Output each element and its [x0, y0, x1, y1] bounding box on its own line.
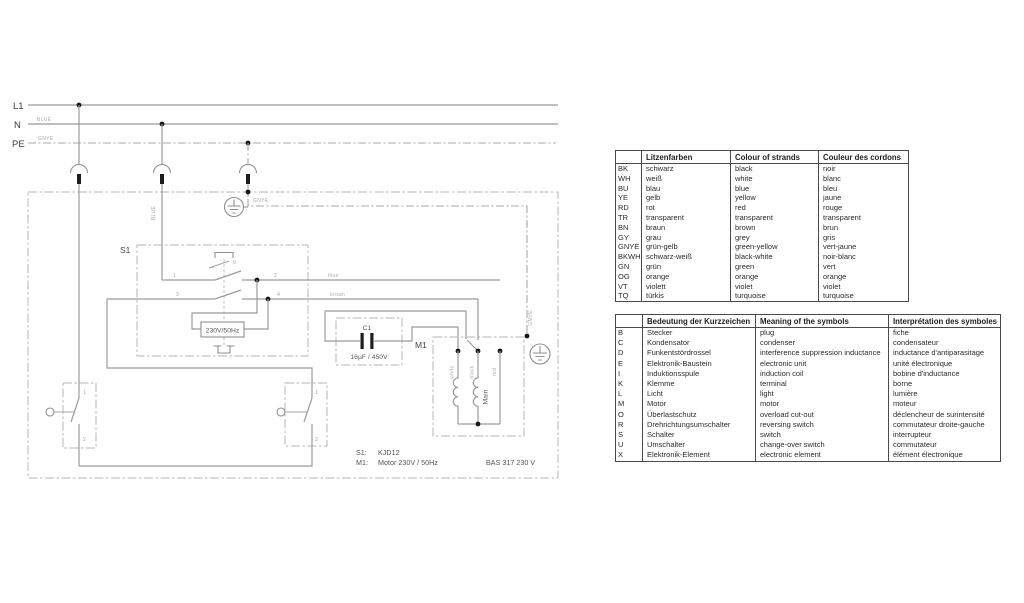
s1-switch-unit: S1 BLUE 0 1 2 3 4 blue brown 230V/50Hz [107, 184, 500, 356]
table-cell: blanc [819, 174, 909, 184]
pe-enclosure-dot [246, 190, 251, 195]
table-cell: light [756, 389, 889, 399]
table-row: LLichtlightlumière [616, 389, 1001, 399]
table-cell: commutateur droite-gauche [889, 420, 1001, 430]
table-row: BKschwarzblacknoir [616, 164, 909, 174]
table-cell: C [616, 338, 643, 348]
gnye-wire [248, 184, 527, 336]
sw2-terminal-1: 1 [315, 390, 318, 396]
table-row: TQtürkisturquoiseturquoise [616, 291, 909, 301]
table-row: BSteckerplugfiche [616, 328, 1001, 339]
table-cell: brown [731, 223, 819, 233]
terminal-4-label: 4 [277, 292, 280, 298]
table-cell: inductance d'antiparasitage [889, 348, 1001, 358]
s1-label: S1 [120, 245, 131, 255]
star-point-dot [476, 422, 481, 427]
earth-symbol-right [530, 344, 550, 364]
table-cell: terminal [756, 379, 889, 389]
footer-m1-value: Motor 230V / 50Hz [378, 458, 438, 467]
table-cell: K [616, 379, 643, 389]
reset-anchor-icon [214, 346, 235, 353]
table-cell: commutateur [889, 440, 1001, 450]
n-color-tag: BLUE [37, 117, 52, 123]
table-cell: Funkentstördrossel [643, 348, 756, 358]
wiring-diagram-page: L1 N PE BLUE GNYE [0, 0, 1024, 603]
table-cell: borne [889, 379, 1001, 389]
motor-m1: M1 white black red Main [415, 299, 524, 436]
table-cell: transparent [819, 213, 909, 223]
table-cell: white [731, 174, 819, 184]
table-cell: rot [642, 203, 731, 213]
table-cell: BN [616, 223, 642, 233]
rail-label-l1: L1 [13, 101, 24, 112]
rail-label-n: N [14, 120, 21, 131]
table-cell: condenser [756, 338, 889, 348]
model-number: BAS 317 230 V [486, 458, 535, 467]
column-header: Couleur des cordons [819, 151, 909, 164]
table-cell: lumière [889, 389, 1001, 399]
table-cell: YE [616, 193, 642, 203]
table-cell: WH [616, 174, 642, 184]
contact-3-4 [107, 290, 478, 299]
main-winding-coil [473, 351, 478, 424]
s1-pos0-label: 0 [233, 260, 236, 266]
table-cell: braun [642, 223, 731, 233]
interlock-switch-left: 1 2 [46, 184, 96, 466]
table-cell: OG [616, 272, 642, 282]
table-cell: motor [756, 399, 889, 409]
table-cell: green [731, 262, 819, 272]
c1-plate-left [361, 333, 364, 349]
table-cell: S [616, 430, 643, 440]
table-cell: D [616, 348, 643, 358]
table-cell: brun [819, 223, 909, 233]
plug-connector-1 [71, 165, 88, 185]
table-cell: türkis [642, 291, 731, 301]
wire-color-table: LitzenfarbenColour of strandsCouleur des… [615, 150, 909, 302]
table-cell: I [616, 369, 643, 379]
table-row: TRtransparenttransparenttransparent [616, 213, 909, 223]
table-cell: Klemme [643, 379, 756, 389]
table-cell: schwarz-weiß [642, 252, 731, 262]
table-cell: blau [642, 184, 731, 194]
table-row: EElektronik-Bausteinelectronic unitunité… [616, 359, 1001, 369]
table-row: RDrehrichtungsumschalterreversing switch… [616, 420, 1001, 430]
sw2-wires [79, 299, 312, 466]
table-cell: M [616, 399, 643, 409]
table-row: SSchalterswitchinterrupteur [616, 430, 1001, 440]
terminal-2-label: 2 [274, 273, 277, 279]
table-cell: black [731, 164, 819, 174]
footer-m1-key: M1: [356, 458, 368, 467]
table-cell: violett [642, 282, 731, 292]
table-cell: Überlastschutz [643, 410, 756, 420]
earth-symbol-left [225, 198, 249, 217]
table-cell: TQ [616, 291, 642, 301]
table-cell: reversing switch [756, 420, 889, 430]
table-cell: switch [756, 430, 889, 440]
white-lead-tag: white [450, 365, 456, 378]
table-row: BNbraunbrownbrun [616, 223, 909, 233]
c1-value: 16µF / 450V [350, 354, 388, 361]
table-cell: BK [616, 164, 642, 174]
c1-plate-right [370, 333, 373, 349]
table-cell: VT [616, 282, 642, 292]
table-cell: violet [819, 282, 909, 292]
interlock-switch-right: 1 2 [79, 299, 327, 466]
table-cell: fiche [889, 328, 1001, 339]
table-cell: electronic unit [756, 359, 889, 369]
table-row: OGorangeorangeorange [616, 272, 909, 282]
sw1-wires [71, 184, 79, 466]
table-cell: bleu [819, 184, 909, 194]
table-cell: gris [819, 233, 909, 243]
table-cell: interrupteur [889, 430, 1001, 440]
table-cell: overload cut-out [756, 410, 889, 420]
red-lead-tag: red [492, 368, 498, 376]
motor-earth-dot [525, 334, 530, 339]
footer-legend: S1: KJD12 M1: Motor 230V / 50Hz BAS 317 … [356, 448, 535, 467]
table-cell: RD [616, 203, 642, 213]
table-row: BUblaubluebleu [616, 184, 909, 194]
column-header: Interprétation des symboles [889, 315, 1001, 328]
table-cell: transparent [731, 213, 819, 223]
terminal-3-label: 3 [176, 292, 179, 298]
table-cell: change-over switch [756, 440, 889, 450]
table-cell: GY [616, 233, 642, 243]
table-cell: transparent [642, 213, 731, 223]
table-cell: orange [819, 272, 909, 282]
blue-wire-tag: blue [328, 273, 339, 279]
table-cell: L [616, 389, 643, 399]
table-row: VTviolettvioletviolet [616, 282, 909, 292]
table-cell: bobine d'inductance [889, 369, 1001, 379]
symbol-table-header-row: Bedeutung der KurzzeichenMeaning of the … [616, 315, 1001, 328]
table-row: DFunkentstördrosselinterference suppress… [616, 348, 1001, 358]
plug-connectors [71, 105, 257, 184]
table-cell: E [616, 359, 643, 369]
table-cell: red [731, 203, 819, 213]
table-cell: Kondensator [643, 338, 756, 348]
coil-rating: 230V/50Hz [206, 328, 240, 335]
sw2-actuator-icon [277, 408, 285, 416]
aux-winding-coil [453, 351, 458, 424]
table-cell: BU [616, 184, 642, 194]
table-cell: O [616, 410, 643, 420]
estop-actuator-icon [215, 253, 233, 259]
table-cell: grey [731, 233, 819, 243]
table-cell: condensateur [889, 338, 1001, 348]
symbol-legend-table: Bedeutung der KurzzeichenMeaning of the … [615, 314, 1001, 462]
table-cell: X [616, 450, 643, 461]
plug-connector-2 [154, 165, 171, 185]
terminal-1-label: 1 [173, 273, 176, 279]
table-cell: Drehrichtungsumschalter [643, 420, 756, 430]
column-header: Bedeutung der Kurzzeichen [643, 315, 756, 328]
table-cell: B [616, 328, 643, 339]
sw1-terminal-1: 1 [83, 390, 86, 396]
table-cell: yellow [731, 193, 819, 203]
gnye-tag-top: GNYE [253, 198, 269, 204]
gnye-tag-right: GNYE [528, 310, 534, 326]
table-cell: interference suppression inductance [756, 348, 889, 358]
table-row: KKlemmeterminalborne [616, 379, 1001, 389]
pe-color-tag: GNYE [38, 136, 54, 142]
color-table-header-row: LitzenfarbenColour of strandsCouleur des… [616, 151, 909, 164]
table-row: YEgelbyellowjaune [616, 193, 909, 203]
table-cell: weiß [642, 174, 731, 184]
table-row: CKondensatorcondensercondensateur [616, 338, 1001, 348]
table-row: OÜberlastschutzoverload cut-outdéclenche… [616, 410, 1001, 420]
table-row: GYgraugreygris [616, 233, 909, 243]
table-cell: TR [616, 213, 642, 223]
table-row: RDrotredrouge [616, 203, 909, 213]
table-cell: noir [819, 164, 909, 174]
table-row: BKWHschwarz-weißblack-whitenoir-blanc [616, 252, 909, 262]
table-cell: BKWH [616, 252, 642, 262]
plug-drop-wires [79, 105, 162, 164]
table-cell: déclencheur de surintensité [889, 410, 1001, 420]
table-row: UUmschalterchange-over switchcommutateur [616, 440, 1001, 450]
column-header: Colour of strands [731, 151, 819, 164]
table-cell: R [616, 420, 643, 430]
main-winding-tag: Main [483, 389, 490, 404]
column-header: Meaning of the symbols [756, 315, 889, 328]
table-cell: unité électronique [889, 359, 1001, 369]
red-wire-and-star-point [458, 351, 500, 424]
table-cell: black-white [731, 252, 819, 262]
black-lead-tag: black [470, 365, 476, 378]
table-cell: turquoise [819, 291, 909, 301]
table-cell: gelb [642, 193, 731, 203]
m1-label: M1 [415, 340, 427, 350]
table-cell: violet [731, 282, 819, 292]
table-row: GNgrüngreenvert [616, 262, 909, 272]
table-cell: rouge [819, 203, 909, 213]
table-cell: turquoise [731, 291, 819, 301]
table-cell: Elektronik-Baustein [643, 359, 756, 369]
table-cell: schwarz [642, 164, 731, 174]
footer-s1-value: KJD12 [378, 448, 400, 457]
brown-wire-tag: brown [330, 292, 345, 298]
table-cell: jaune [819, 193, 909, 203]
rail-label-pe: PE [12, 139, 25, 150]
table-cell: induction coil [756, 369, 889, 379]
column-header [616, 315, 643, 328]
table-cell: electronic element [756, 450, 889, 461]
s1-outline [137, 245, 308, 356]
table-row: GNYEgrün-gelbgreen-yellowvert-jaune [616, 242, 909, 252]
table-cell: orange [731, 272, 819, 282]
table-cell: GN [616, 262, 642, 272]
power-rails: L1 N PE BLUE GNYE [12, 101, 558, 150]
table-cell: green-yellow [731, 242, 819, 252]
blue-drop-tag: BLUE [151, 206, 157, 221]
table-row: MMotormotormoteur [616, 399, 1001, 409]
table-cell: Licht [643, 389, 756, 399]
table-cell: blue [731, 184, 819, 194]
table-cell: élément électronique [889, 450, 1001, 461]
table-cell: noir-blanc [819, 252, 909, 262]
table-cell: vert [819, 262, 909, 272]
sw2-terminal-2: 2 [315, 437, 318, 443]
table-cell: moteur [889, 399, 1001, 409]
column-header: Litzenfarben [642, 151, 731, 164]
footer-s1-key: S1: [356, 448, 367, 457]
sw1-terminal-2: 2 [83, 437, 86, 443]
table-cell: Induktionsspule [643, 369, 756, 379]
table-cell: U [616, 440, 643, 450]
column-header [616, 151, 642, 164]
table-row: IInduktionsspuleinduction coilbobine d'i… [616, 369, 1001, 379]
table-cell: grün [642, 262, 731, 272]
trip-release-icon [209, 261, 229, 268]
plug-connector-3 [240, 165, 257, 185]
table-cell: orange [642, 272, 731, 282]
c1-label: C1 [363, 325, 372, 332]
table-cell: Motor [643, 399, 756, 409]
table-cell: Umschalter [643, 440, 756, 450]
table-cell: GNYE [616, 242, 642, 252]
table-cell: Stecker [643, 328, 756, 339]
capacitor-c1: C1 16µF / 450V [325, 311, 478, 365]
table-row: XElektronik-Elementelectronic elementélé… [616, 450, 1001, 461]
table-cell: Schalter [643, 430, 756, 440]
table-cell: grau [642, 233, 731, 243]
table-cell: plug [756, 328, 889, 339]
sw1-actuator-icon [46, 408, 54, 416]
table-cell: vert-jaune [819, 242, 909, 252]
table-cell: Elektronik-Element [643, 450, 756, 461]
table-row: WHweißwhiteblanc [616, 174, 909, 184]
table-cell: grün-gelb [642, 242, 731, 252]
